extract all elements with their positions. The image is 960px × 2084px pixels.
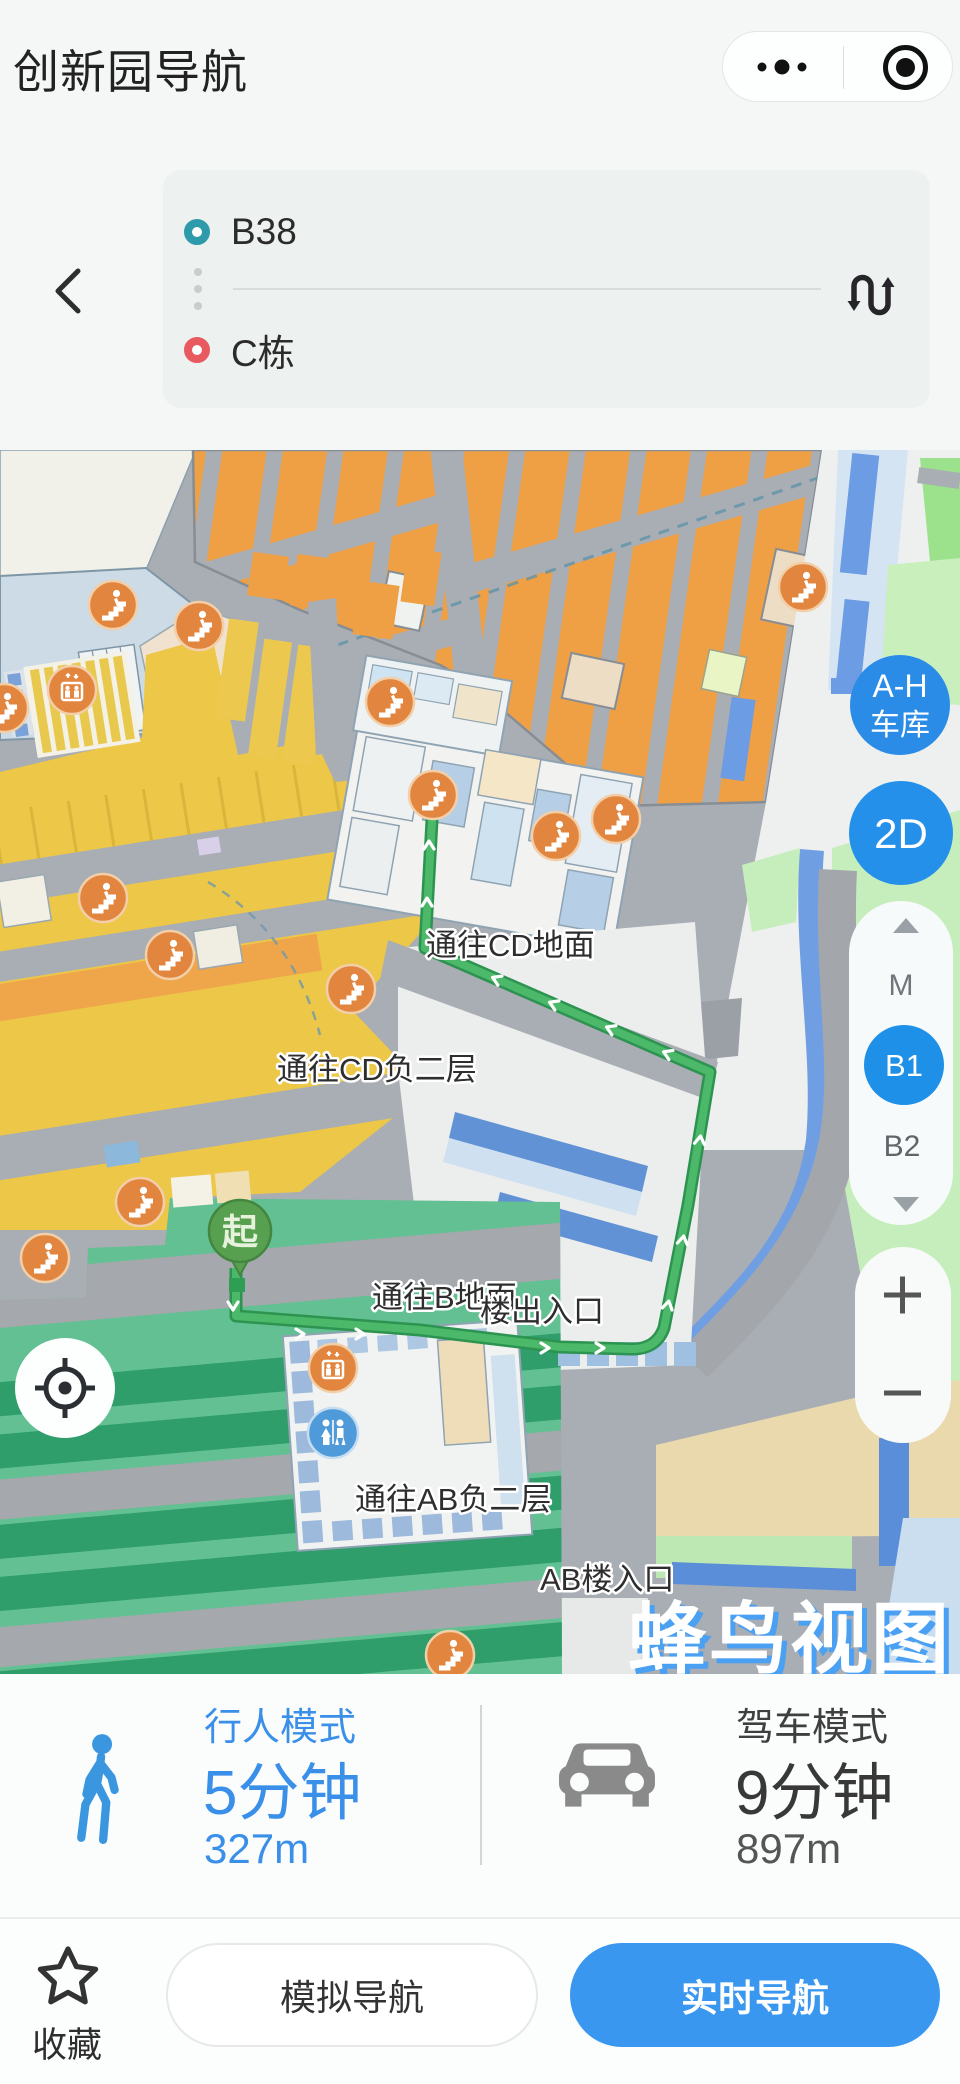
svg-text:楼出入口: 楼出入口	[480, 1294, 604, 1329]
svg-text:通往CD负二层: 通往CD负二层	[277, 1052, 477, 1087]
svg-text:AB楼入口: AB楼入口	[540, 1562, 674, 1597]
svg-text:通往AB负二层: 通往AB负二层	[355, 1482, 551, 1517]
svg-text:蜂鸟视图: 蜂鸟视图	[628, 1595, 952, 1674]
svg-text:M: M	[889, 969, 914, 1002]
svg-text:起: 起	[222, 1211, 259, 1252]
svg-text:2D: 2D	[874, 810, 928, 857]
svg-text:通往CD地面: 通往CD地面	[426, 928, 595, 963]
svg-text:B2: B2	[884, 1130, 921, 1163]
svg-text:车库: 车库	[870, 709, 930, 742]
svg-text:B1: B1	[885, 1048, 923, 1083]
svg-text:A-H: A-H	[872, 668, 927, 704]
